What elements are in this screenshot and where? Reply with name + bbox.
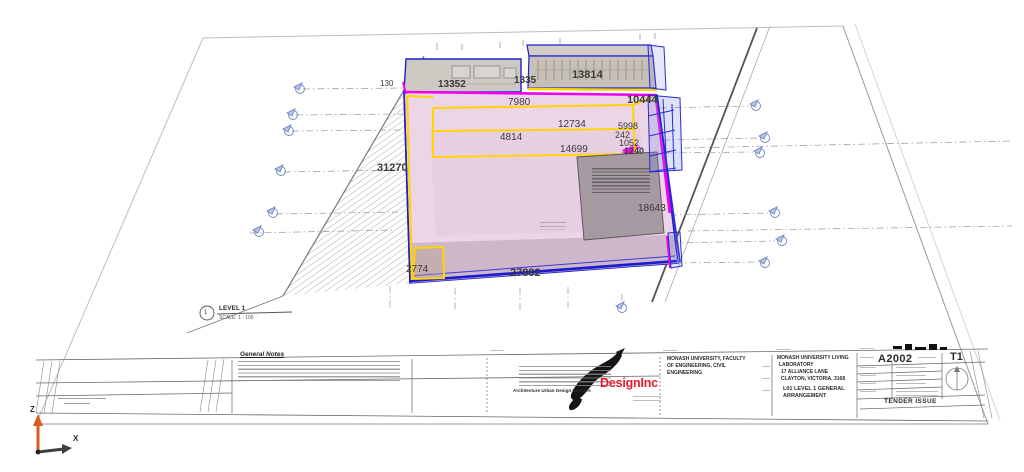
revision-strip-text [58, 398, 106, 401]
cell-label [860, 348, 874, 351]
revision-code: T1 [950, 350, 963, 365]
dimension-label: 1335 [514, 76, 536, 86]
dimension-label: 4814 [500, 133, 522, 143]
number-block-row [896, 383, 926, 386]
cell-label [663, 350, 677, 353]
drawing-sheet-view: 130 13352 1335 13814 7980 10444 12734 59… [0, 0, 1024, 472]
number-block-row [860, 391, 876, 394]
number-block-row [896, 391, 938, 397]
number-block-label [860, 357, 874, 360]
project-line: LABORATORY [779, 362, 814, 369]
cell-label [762, 378, 770, 381]
designinc-logo-text: DesignInc [600, 375, 658, 392]
dimension-label: 130 [380, 80, 393, 88]
project-line: CLAYTON, VICTORIA, 3168 [781, 376, 845, 383]
consultant-line: MONASH UNIVERSITY, FACULTY [667, 356, 746, 363]
view-title: LEVEL 1 [219, 305, 245, 314]
roof-band-right [527, 45, 657, 90]
cell-label [762, 366, 770, 369]
number-block-row [860, 367, 876, 370]
consultant-line: OF ENGINEERING, CIVIL [667, 363, 726, 370]
cell-label [490, 350, 504, 353]
cell-label [776, 349, 790, 352]
dimension-label: 27882 [510, 268, 541, 279]
view-scale: SCALE: 1 : 100 [219, 315, 253, 322]
hatch-zone [187, 56, 424, 333]
axis-gizmo [33, 414, 72, 454]
dimension-label: 10444 [627, 95, 658, 106]
dimension-label: 7980 [508, 98, 530, 108]
drawing-number: A2002 [878, 352, 912, 367]
room-text-block [540, 222, 566, 230]
architect-address-text [519, 366, 611, 386]
consultant-line: ENGINEERING [667, 370, 702, 377]
axis-z-label: Z [30, 405, 35, 416]
general-notes-heading: General Notes [240, 351, 284, 360]
dimension-label: 2774 [406, 265, 428, 275]
general-notes-text [238, 361, 400, 382]
project-line: MONASH UNIVERSITY LIVING [777, 355, 849, 362]
number-block-row [896, 375, 926, 378]
calibration-marks [893, 344, 947, 350]
issue-status: TENDER ISSUE [884, 398, 937, 407]
drawing-title-line: ARRANGEMENT [783, 393, 826, 400]
dimension-label: 18643 [638, 204, 666, 214]
number-block-row [860, 375, 876, 378]
sheet-linework [0, 0, 1024, 472]
dimension-label: 13352 [438, 80, 466, 90]
dimension-label: 31270 [377, 163, 408, 174]
view-number: 1 [204, 309, 207, 317]
number-block-row [896, 367, 926, 370]
number-block-row [860, 383, 876, 386]
cell-label [762, 390, 770, 393]
dimension-label: 12734 [558, 120, 586, 130]
revision-strip-text [64, 403, 90, 406]
project-line: 17 ALLIANCE LANE [781, 369, 828, 376]
architect-subtext [633, 396, 661, 401]
number-block-label [918, 357, 936, 360]
dimension-label: 1240 [624, 147, 644, 156]
dimension-label: 14699 [560, 145, 588, 155]
architect-tagline: Architecture Urban Design Interiors [513, 388, 591, 394]
axis-x-label: X [73, 434, 78, 445]
room-text-block [592, 168, 650, 195]
dimension-label: 13814 [572, 70, 603, 81]
